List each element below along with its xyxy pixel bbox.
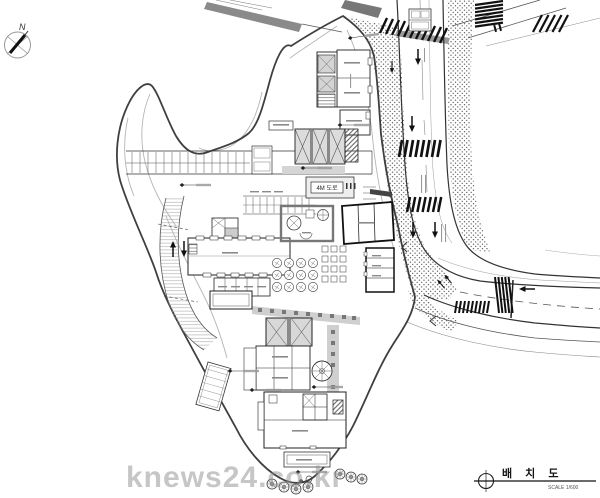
tree-grid [272,258,317,291]
drawing-title: 배 치 도 [502,466,563,480]
compass-label: N [19,22,26,32]
pool-and-ramp [196,291,252,411]
building-east [342,202,394,292]
site-plan-page: 4M 도로 [0,0,600,498]
road-label: 4M 도로 [316,185,338,192]
courtyard [281,206,333,241]
road-label-box: 4M 도로 [306,177,392,198]
watermark: knews24.co.kr [126,461,344,494]
outdoor-seating [322,246,346,282]
compass-needle [10,35,25,53]
drawing-scale: SCALE 1/600 [548,485,579,491]
traffic-island [409,9,431,31]
top-streets [204,0,600,46]
building-south-center [244,318,332,390]
building-south [258,392,346,449]
site-plan-drawing: 4M 도로 [0,0,600,498]
compass: N [5,22,31,58]
title-block: 배 치 도 SCALE 1/600 [474,466,596,492]
